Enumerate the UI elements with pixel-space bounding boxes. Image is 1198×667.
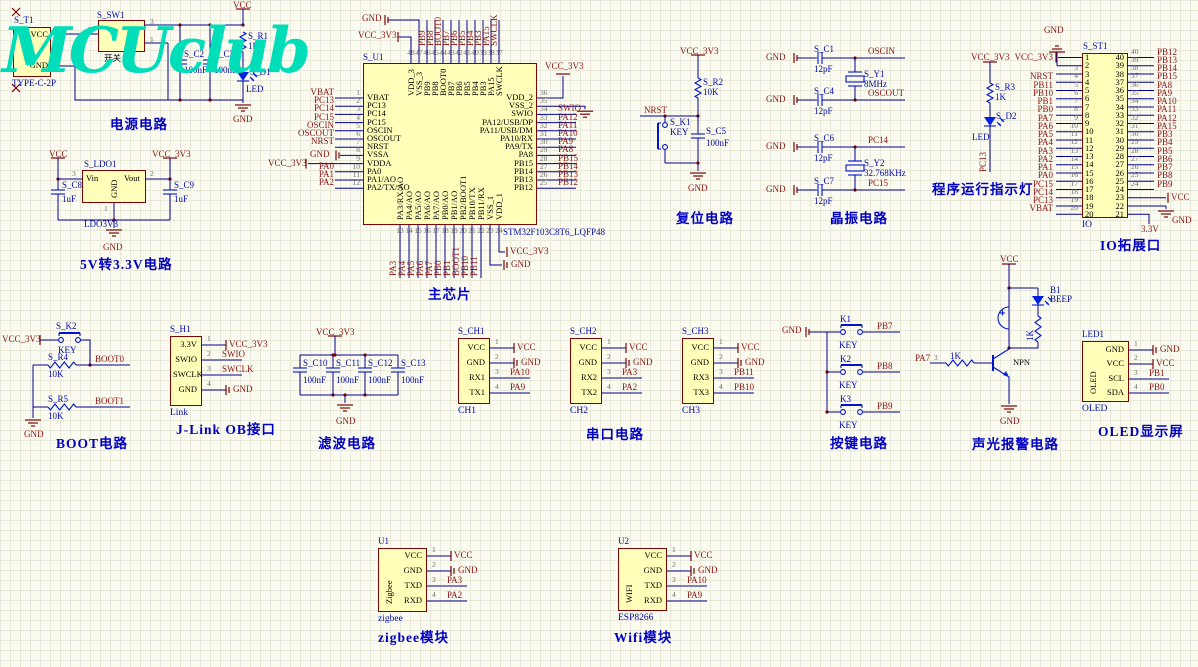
pin-name: VCC [685, 343, 709, 352]
value: 10K [48, 370, 64, 380]
value: KEY [839, 341, 858, 351]
net-label: PA2 [284, 178, 334, 188]
net-label: PB11 [734, 368, 754, 378]
block-title: BOOT电路 [56, 437, 128, 452]
designator: LED1 [1082, 330, 1104, 340]
pin-name: GND [573, 358, 597, 367]
power-label: GND [103, 243, 123, 253]
designator: S_C13 [401, 359, 426, 369]
block-title: 滤波电路 [318, 437, 376, 452]
power-label: GND [782, 326, 802, 336]
pin-name: TX1 [461, 388, 485, 397]
net-label: BOOT1 [95, 397, 124, 407]
connector-name: ESP8266 [618, 613, 653, 623]
pin-number: 24 [494, 227, 504, 235]
pin-number: 3 [607, 368, 611, 376]
pin-number: 2 [150, 170, 154, 178]
pin-name: VCC [1085, 359, 1124, 368]
pin-name: Vout [124, 174, 140, 183]
pin-number: 37 [494, 49, 504, 57]
pin-number: 3 [72, 170, 76, 178]
pin-number: 24 [1131, 180, 1139, 188]
pin-name: GND [1085, 345, 1124, 354]
pin-name: VDD_1 [495, 193, 504, 220]
block-title: 声光报警电路 [972, 438, 1059, 453]
value: 100nF [401, 376, 424, 386]
net-label: PA2 [622, 383, 637, 393]
value: LED [972, 133, 990, 143]
pin-number: 4 [672, 591, 676, 599]
connector-name: CH2 [570, 406, 588, 416]
value: 12pF [814, 107, 833, 117]
power-label: GND [1160, 345, 1180, 355]
power-label: GND [511, 260, 531, 270]
pin-name: VCC [381, 551, 422, 560]
net-label: NRST [284, 137, 334, 147]
value: 12pF [814, 197, 833, 207]
pin-number: 3 [495, 368, 499, 376]
block-title: J-Link OB接口 [176, 423, 276, 438]
mcuclub-logo: MCUclub [2, 16, 308, 85]
pin-name: GND [381, 566, 422, 575]
value: 1K [950, 352, 961, 362]
pin-name: RX2 [573, 373, 597, 382]
pin-name: VCC [461, 343, 485, 352]
block-title: OLED显示屏 [1098, 425, 1184, 440]
power-label: VCC_3V3 [358, 31, 397, 41]
pin-number: 3 [672, 576, 676, 584]
pin-number: 4 [495, 383, 499, 391]
part-number: STM32F103C8T6_LQFP48 [503, 228, 605, 238]
power-label: GND [233, 385, 253, 395]
pin-number: 2 [1134, 354, 1138, 362]
designator: S_CH2 [570, 327, 597, 337]
power-label: GND [688, 184, 708, 194]
value: 8MHz [864, 80, 887, 90]
power-label: VCC [1171, 193, 1190, 203]
power-label: GND [233, 115, 253, 125]
pin-name: RXD [621, 596, 662, 605]
pin-name: TX2 [573, 388, 597, 397]
pin-number: 2 [495, 353, 499, 361]
designator: S_C7 [814, 177, 834, 187]
power-label: GND [1044, 26, 1064, 36]
net-label: PA10 [687, 576, 707, 586]
net-label: PB7 [877, 322, 893, 332]
value: 10K [703, 88, 719, 98]
net-label: 3.3V [1141, 225, 1159, 235]
designator: U1 [378, 537, 389, 547]
designator: S_R5 [48, 395, 68, 405]
designator: S_C12 [368, 359, 393, 369]
designator: S_H1 [170, 325, 191, 335]
designator: S_C10 [303, 359, 328, 369]
pin-name: SCL [1085, 374, 1124, 383]
power-label: GND [1172, 216, 1192, 226]
net-label: PA10 [510, 368, 530, 378]
power-label: VCC [629, 343, 648, 353]
pin-name: VCC [621, 551, 662, 560]
power-label: VCC [694, 551, 713, 561]
net-label: SWCLK [490, 15, 500, 47]
power-label: VCC_3V3 [510, 247, 549, 257]
power-label: GND [336, 417, 356, 427]
pin-name: RX1 [461, 373, 485, 382]
block-title: 按键电路 [830, 437, 888, 452]
net-label: PB10 [734, 383, 754, 393]
connector-name: CH3 [682, 406, 700, 416]
pin-number: 1 [432, 546, 436, 554]
pin-number: 3 [719, 368, 723, 376]
net-label: OSCOUT [868, 89, 904, 99]
designator: S_C8 [62, 181, 82, 191]
net-label: PB9 [1157, 180, 1173, 190]
designator: S_C5 [706, 127, 726, 137]
connector-name: CH1 [458, 406, 476, 416]
net-label: OSCIN [868, 47, 895, 57]
pin-number: 1 [104, 205, 108, 213]
power-label: GND [766, 95, 786, 105]
value: 100nF [303, 376, 326, 386]
designator: S_LDO1 [84, 160, 117, 170]
schematic-sheet[interactable]: MCUclub S_T1VCCGNDTYPE-C-2P12S_SW1开关231S… [0, 0, 1198, 667]
pin-number: 1 [607, 338, 611, 346]
power-label: GND [766, 53, 786, 63]
pin-name: SWIO [173, 355, 197, 364]
part-number: LDO3V3 [84, 220, 118, 230]
pin-number: 1 [719, 338, 723, 346]
pin-name: 3.3V [173, 340, 197, 349]
net-label: PB1 [1149, 369, 1165, 379]
net-label: PC15 [868, 179, 888, 189]
pin-number: 4 [207, 380, 211, 388]
net-label: PA9 [687, 591, 702, 601]
block-title: zigbee模块 [378, 631, 449, 646]
designator: S_R4 [48, 353, 68, 363]
value: 1uF [174, 195, 188, 205]
power-label: GND [24, 430, 44, 440]
power-label: VCC_3V3 [971, 53, 1010, 63]
value: KEY [670, 128, 689, 138]
value: 1K [1026, 330, 1036, 341]
value: 100nF [336, 376, 359, 386]
pin-number: 2 [672, 561, 676, 569]
pin-number: 3 [934, 354, 938, 362]
connector-name: IO [1082, 220, 1092, 230]
power-label: GND [766, 142, 786, 152]
connector-name: OLED [1082, 404, 1107, 414]
designator: S_C4 [814, 87, 834, 97]
net-label: PA2 [447, 591, 462, 601]
value: 32.768KHz [864, 169, 906, 179]
net-label: NRST [644, 106, 667, 116]
pin-name: RX3 [685, 373, 709, 382]
net-label: SWCLK [222, 365, 254, 375]
block-title: 复位电路 [676, 212, 734, 227]
power-label: VCC [1000, 255, 1019, 265]
power-label: VCC_3V3 [1013, 53, 1053, 63]
pin-number: 4 [432, 591, 436, 599]
pin-number: 2 [607, 353, 611, 361]
net-label: PB9 [877, 402, 893, 412]
net-label: PA9 [510, 383, 525, 393]
pin-name: TXD [381, 581, 422, 590]
designator: S_C1 [814, 45, 834, 55]
block-title: Wifi模块 [614, 631, 672, 646]
net-label: BOOT0 [95, 355, 124, 365]
block-title: IO拓展口 [1100, 239, 1161, 254]
pin-number: 4 [719, 383, 723, 391]
net-label: SWIO [222, 350, 245, 360]
pin-number: 4 [1134, 383, 1138, 391]
power-label: GND [310, 150, 330, 160]
designator: S_K2 [56, 322, 77, 332]
pin-name: TX3 [685, 388, 709, 397]
block-title: 晶振电路 [830, 212, 888, 227]
pin-number: 4 [607, 383, 611, 391]
designator: S_ST1 [1083, 42, 1108, 52]
pin-number: 12 [344, 179, 360, 187]
net-label: PC13 [979, 152, 989, 172]
pin-name: GND [173, 385, 197, 394]
value: 12pF [814, 65, 833, 75]
pin-number: 3 [207, 365, 211, 373]
pin-name: SDA [1085, 388, 1124, 397]
pin-number: 2 [719, 353, 723, 361]
pin-number: 1 [1134, 340, 1138, 348]
net-label: PB11 [470, 256, 480, 276]
designator: K3 [840, 395, 851, 405]
net-label: PC14 [868, 136, 888, 146]
pin-name: GND [461, 358, 485, 367]
designator: S_C9 [174, 181, 194, 191]
power-label: VCC_3V3 [545, 62, 584, 72]
power-label: GND [766, 185, 786, 195]
power-label: VCC_3V3 [152, 150, 191, 160]
power-label: VCC_3V3 [2, 335, 41, 345]
pin-number: 1 [495, 338, 499, 346]
value: 1K [995, 93, 1006, 103]
designator: S_CH3 [682, 327, 709, 337]
block-title: 5V转3.3V电路 [80, 258, 173, 273]
pin-name: TXD [621, 581, 662, 590]
net-label: PB0 [1149, 383, 1165, 393]
designator: U2 [618, 537, 629, 547]
designator: S_CH1 [458, 327, 485, 337]
designator: K1 [840, 315, 851, 325]
block-title: 主芯片 [428, 288, 472, 303]
net-label: PB8 [877, 362, 893, 372]
net-label: PA3 [447, 576, 462, 586]
value: 10K [48, 412, 64, 422]
pin-number: 3 [1134, 369, 1138, 377]
transistor-type: NPN [1013, 358, 1030, 367]
net-label: PA7 [915, 354, 930, 364]
pin-number: 1 [672, 546, 676, 554]
pin-number: 25 [540, 179, 548, 187]
pin-name: GND [621, 566, 662, 575]
pin-name: SWCLK [495, 66, 504, 96]
power-label: GND [1000, 417, 1020, 427]
value: KEY [839, 381, 858, 391]
power-label: VCC_3V3 [680, 47, 719, 57]
pin-number: 2 [207, 350, 211, 358]
pin-number: 1 [207, 335, 211, 343]
net-label: PB12 [558, 178, 578, 188]
value: BEEP [1050, 295, 1072, 305]
power-label: GND [362, 14, 382, 24]
designator: S_C6 [814, 134, 834, 144]
power-label: VCC [517, 343, 536, 353]
net-label: VBAT [1013, 204, 1053, 214]
pin-name: 20 [1085, 210, 1094, 219]
pin-name: VCC [573, 343, 597, 352]
pin-number: 3 [432, 576, 436, 584]
pin-name: GND [685, 358, 709, 367]
value: 100nF [368, 376, 391, 386]
pin-name: Vin [86, 174, 98, 183]
designator: S_C11 [336, 359, 360, 369]
value: 1uF [62, 195, 76, 205]
designator: S_U1 [363, 53, 384, 63]
pin-number: 2 [432, 561, 436, 569]
net-label: PA3 [622, 368, 637, 378]
connector-name: Link [170, 408, 188, 418]
power-label: VCC [454, 551, 473, 561]
power-label: VCC [49, 150, 68, 160]
value: KEY [839, 421, 858, 431]
power-label: VCC [233, 1, 252, 11]
pin-name: 21 [1106, 210, 1124, 219]
pin-name: GND [110, 180, 119, 198]
designator: K2 [840, 355, 851, 365]
value: 100nF [706, 139, 729, 149]
pin-name: SWCLK [173, 370, 197, 379]
value: 12pF [814, 154, 833, 164]
connector-name: zigbee [378, 614, 403, 624]
power-label: VCC_3V3 [316, 328, 355, 338]
pin-name: RXD [381, 596, 422, 605]
block-title: 串口电路 [586, 428, 644, 443]
power-label: VCC [741, 343, 760, 353]
block-title: 电源电路 [110, 118, 168, 133]
pin-number: 20 [1064, 204, 1078, 212]
